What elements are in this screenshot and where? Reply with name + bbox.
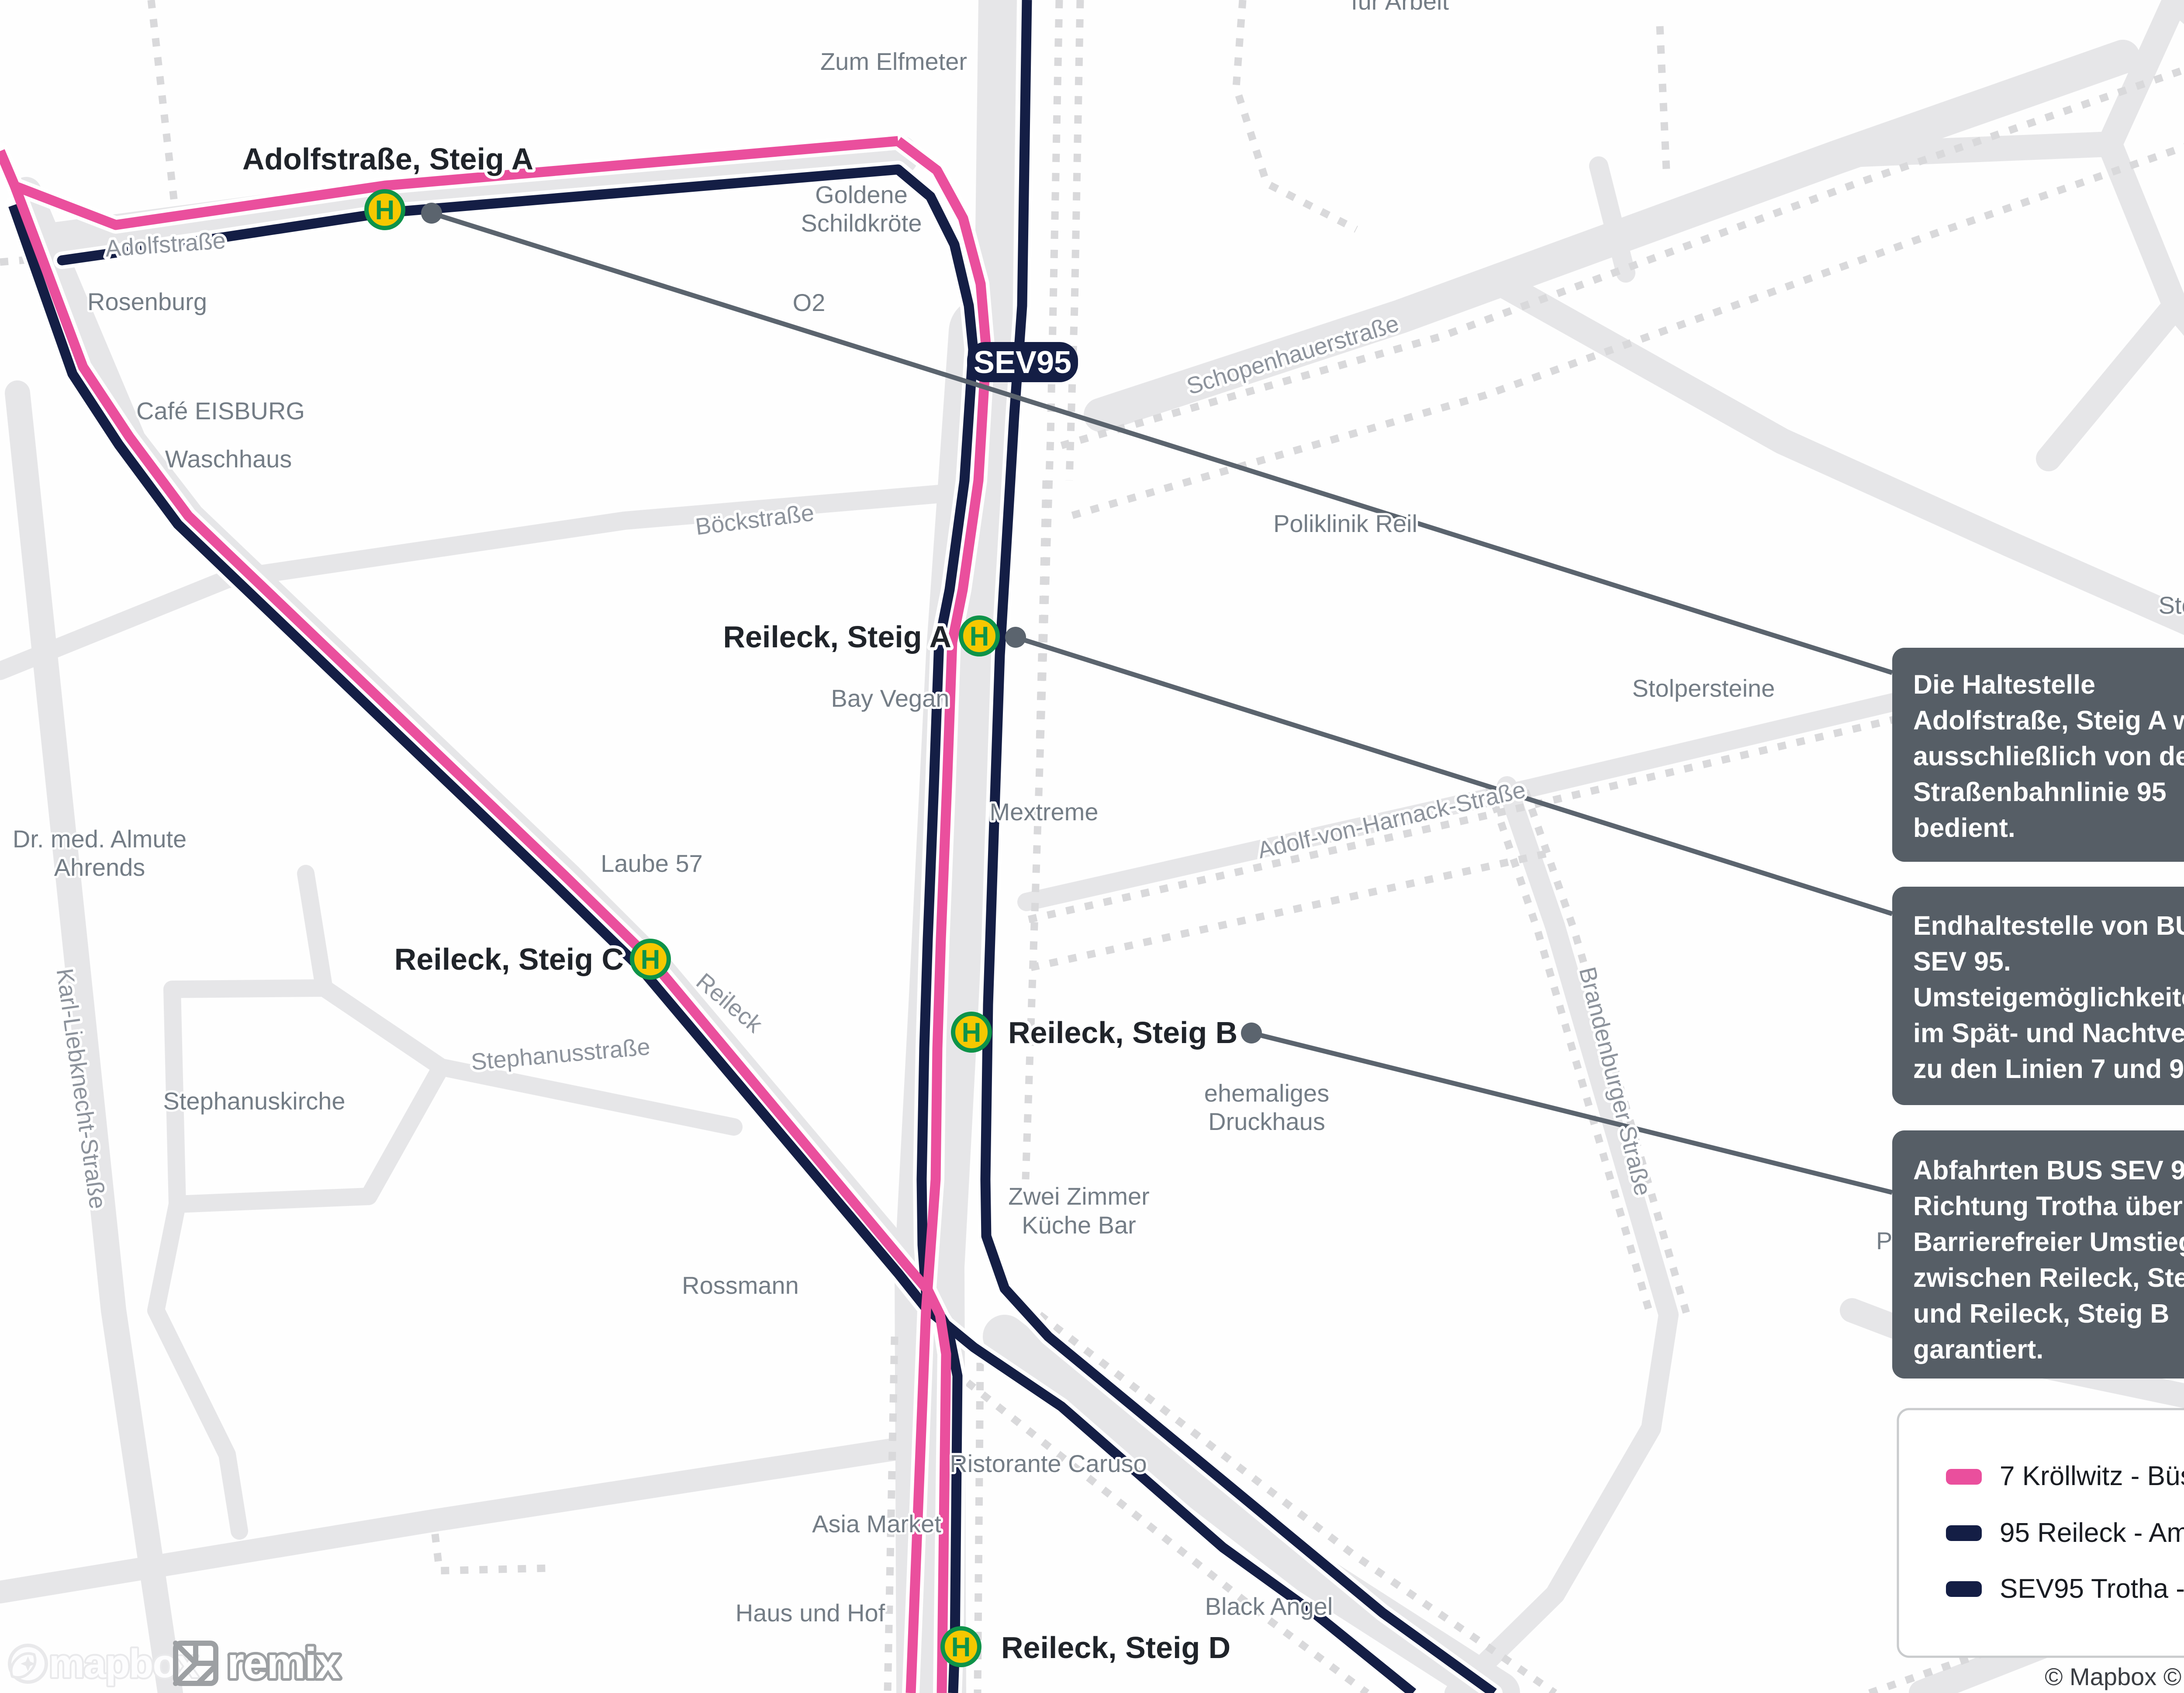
svg-text:garantiert.: garantiert.	[1913, 1334, 2043, 1364]
svg-text:Café EISBURG: Café EISBURG	[136, 397, 305, 425]
svg-text:H: H	[962, 1018, 981, 1048]
svg-text:95 Reileck - Ammendorf: 95 Reileck - Ammendorf	[2000, 1518, 2184, 1548]
svg-text:H: H	[375, 195, 395, 225]
svg-text:ehemaliges: ehemaliges	[1204, 1079, 1329, 1107]
svg-text:Druckhaus: Druckhaus	[1208, 1108, 1325, 1135]
svg-text:Goldene: Goldene	[815, 181, 908, 208]
svg-text:SEV95 Trotha - Reileck: SEV95 Trotha - Reileck	[2000, 1574, 2184, 1604]
svg-text:Schildkröte: Schildkröte	[801, 209, 922, 237]
svg-text:Reileck, Steig C: Reileck, Steig C	[394, 942, 624, 976]
svg-text:Reileck, Steig B: Reileck, Steig B	[1008, 1016, 1237, 1050]
svg-text:zwischen Reileck, Steig C: zwischen Reileck, Steig C	[1913, 1263, 2184, 1292]
svg-text:H: H	[951, 1632, 971, 1662]
svg-text:© Mapbox © OpenStreetMap: © Mapbox © OpenStreetMap	[2045, 1663, 2184, 1690]
svg-text:7 Kröllwitz - Büschdorf: 7 Kröllwitz - Büschdorf	[2000, 1461, 2184, 1491]
svg-text:Die Haltestelle: Die Haltestelle	[1913, 670, 2095, 699]
svg-text:Rosenburg: Rosenburg	[87, 288, 207, 315]
svg-text:SEV95: SEV95	[974, 345, 1071, 380]
svg-text:Straßenbahnlinie 95: Straßenbahnlinie 95	[1913, 777, 2167, 807]
svg-text:Barrierefreier Umstieg: Barrierefreier Umstieg	[1913, 1227, 2184, 1257]
svg-text:SEV 95.: SEV 95.	[1913, 947, 2011, 976]
svg-text:Endhaltestelle von BUS: Endhaltestelle von BUS	[1913, 911, 2184, 940]
svg-text:Reileck, Steig D: Reileck, Steig D	[1001, 1631, 1230, 1665]
svg-text:Adolfstraße, Steig A wird: Adolfstraße, Steig A wird	[1913, 705, 2184, 735]
svg-text:Zwei Zimmer: Zwei Zimmer	[1008, 1182, 1150, 1210]
svg-text:Laube 57: Laube 57	[601, 850, 703, 877]
svg-text:Umsteigemöglichkeiten: Umsteigemöglichkeiten	[1913, 982, 2184, 1012]
svg-text:Black Angel: Black Angel	[1205, 1593, 1333, 1620]
svg-text:Bay Vegan: Bay Vegan	[831, 684, 950, 712]
svg-text:remix: remix	[227, 1639, 340, 1688]
svg-text:Küche Bar: Küche Bar	[1022, 1211, 1136, 1239]
svg-text:und Reileck, Steig B: und Reileck, Steig B	[1913, 1299, 2169, 1328]
svg-text:Stolpersteine: Stolpersteine	[2159, 591, 2184, 619]
svg-text:im Spät- und Nachtverkehr: im Spät- und Nachtverkehr	[1913, 1018, 2184, 1048]
svg-text:H: H	[970, 622, 989, 652]
svg-text:Mextreme: Mextreme	[990, 798, 1099, 826]
svg-text:Zum Elfmeter: Zum Elfmeter	[820, 48, 967, 75]
svg-text:Stephanuskirche: Stephanuskirche	[163, 1087, 345, 1115]
svg-text:O2: O2	[793, 289, 826, 316]
svg-text:Ahrends: Ahrends	[54, 853, 145, 881]
svg-text:für Arbeit: für Arbeit	[1351, 0, 1449, 15]
svg-text:Haus und Hof: Haus und Hof	[736, 1599, 885, 1627]
svg-text:zu den Linien 7 und 95.: zu den Linien 7 und 95.	[1913, 1054, 2184, 1084]
svg-text:Dr. med. Almute: Dr. med. Almute	[13, 825, 187, 853]
svg-text:H: H	[641, 945, 660, 975]
svg-text:Asia Market: Asia Market	[812, 1510, 941, 1538]
svg-text:Poliklinik Reil: Poliklinik Reil	[1273, 510, 1417, 537]
svg-text:Stolpersteine: Stolpersteine	[1632, 674, 1775, 702]
svg-text:Ristorante Caruso: Ristorante Caruso	[950, 1450, 1147, 1477]
svg-text:Waschhaus: Waschhaus	[165, 445, 292, 473]
svg-text:Abfahrten BUS SEV 95 in: Abfahrten BUS SEV 95 in	[1913, 1155, 2184, 1185]
svg-text:ausschließlich von der: ausschließlich von der	[1913, 741, 2184, 771]
svg-text:bedient.: bedient.	[1913, 813, 2015, 843]
svg-text:Richtung Trotha über Zoo.: Richtung Trotha über Zoo.	[1913, 1191, 2184, 1221]
svg-text:Rossmann: Rossmann	[682, 1271, 799, 1299]
svg-text:Reileck, Steig A: Reileck, Steig A	[723, 620, 951, 654]
svg-text:Adolfstraße, Steig A: Adolfstraße, Steig A	[242, 142, 533, 176]
